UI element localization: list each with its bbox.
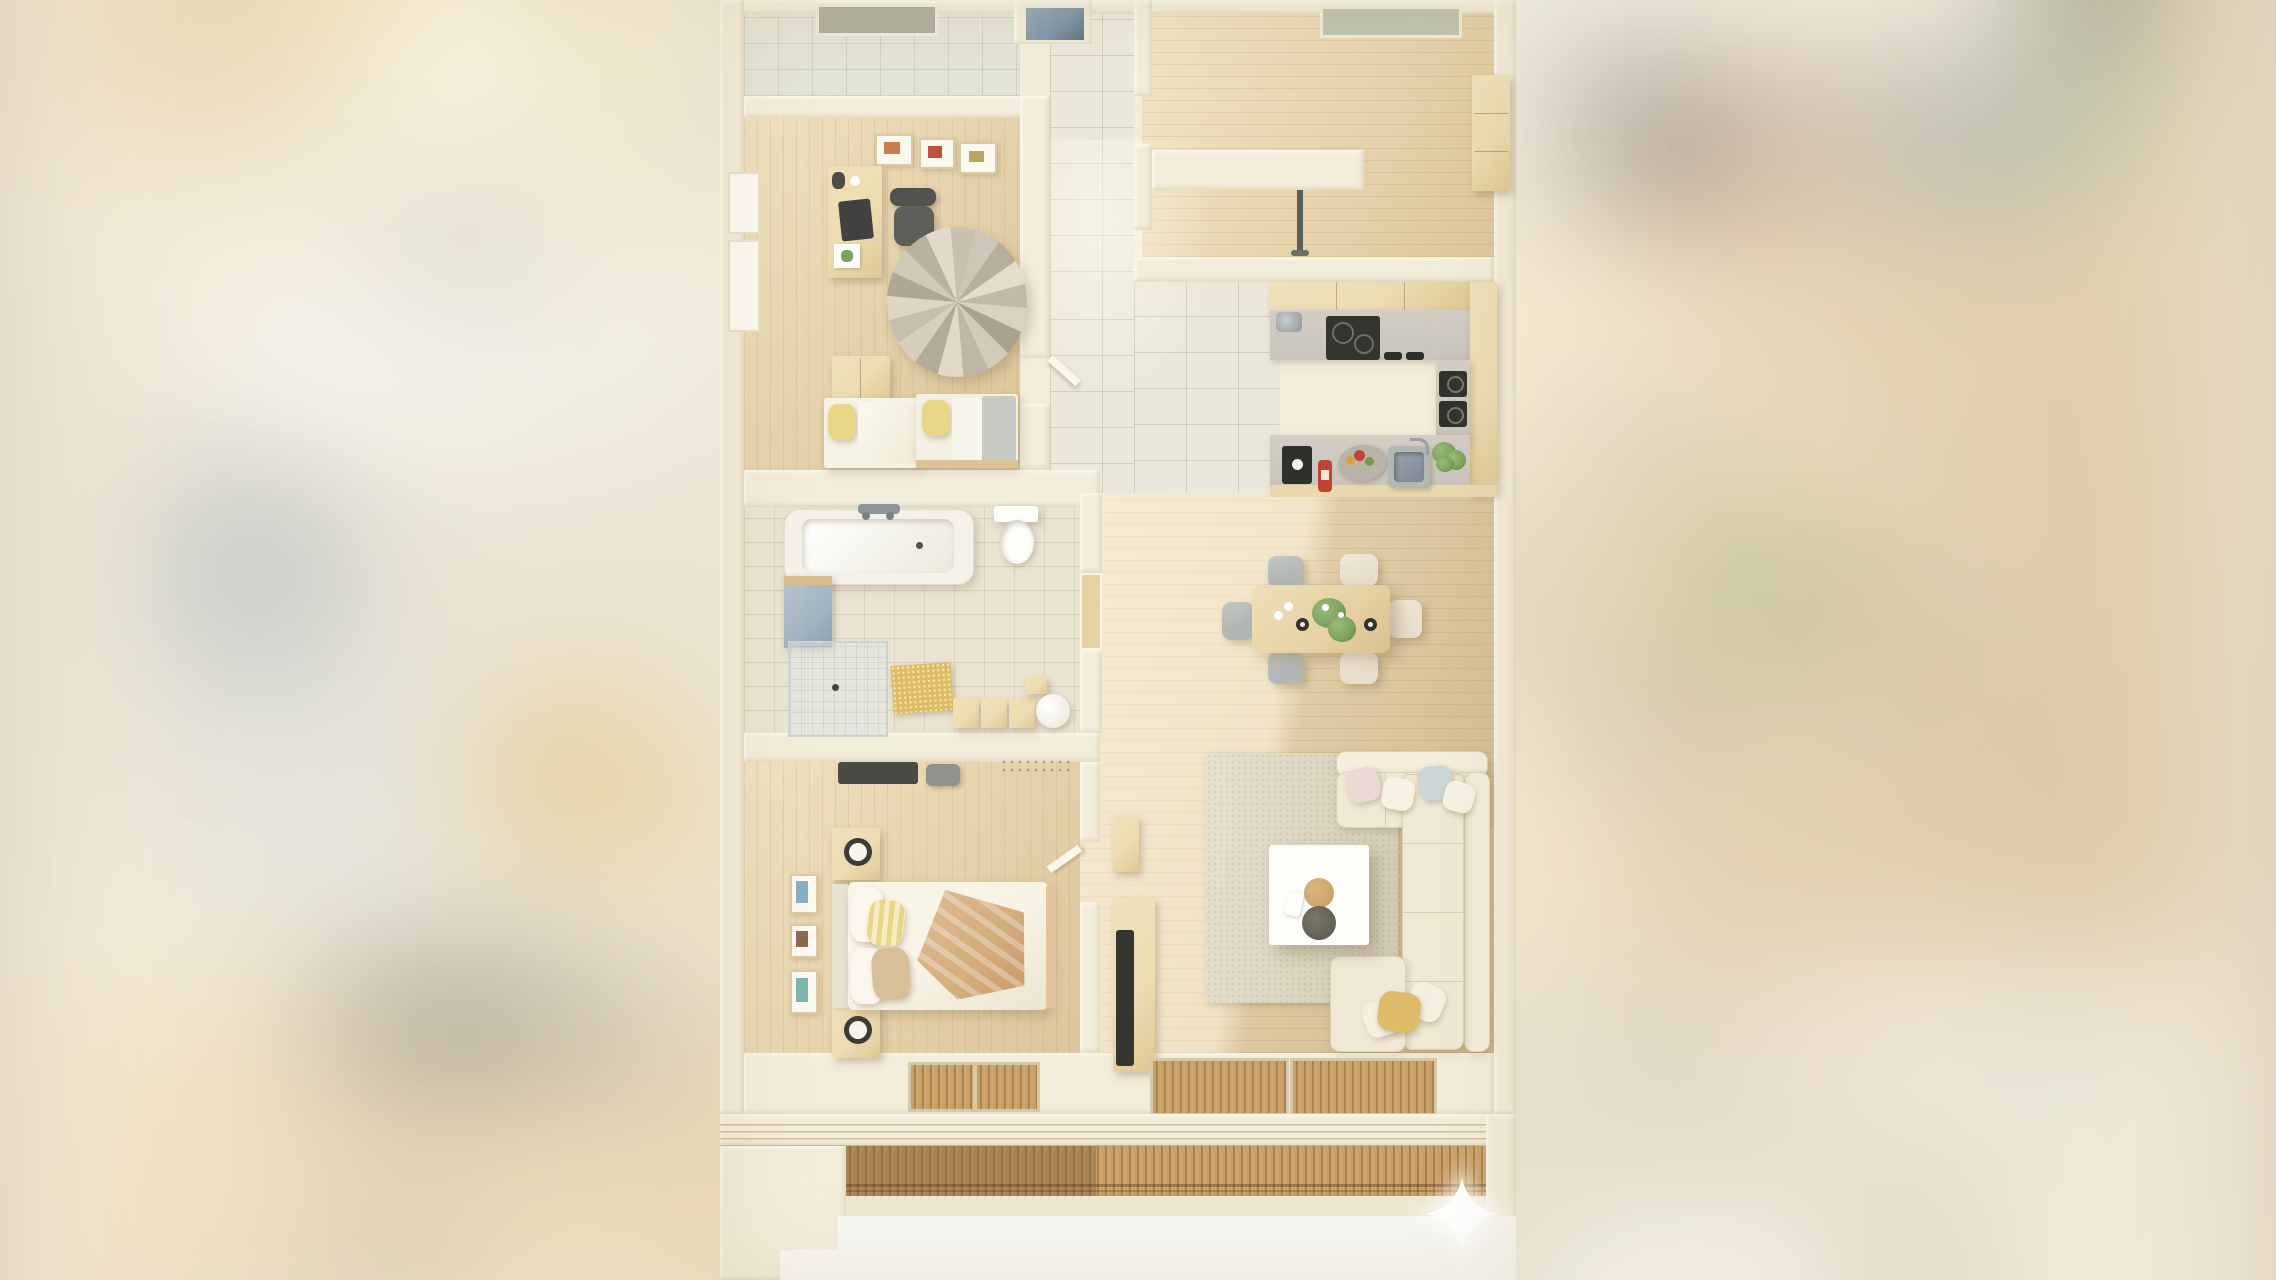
bowl: [1302, 906, 1336, 940]
closet: [1472, 75, 1510, 191]
wall: [1152, 150, 1364, 190]
wall: [744, 96, 1050, 118]
cup: [1284, 602, 1293, 611]
wall-art: [919, 138, 955, 169]
dining-chair: [1340, 652, 1378, 684]
kitchen-cabinet-right: [1470, 282, 1497, 493]
stove: [1326, 316, 1380, 360]
skylight: [1024, 6, 1086, 42]
shower-handle: [832, 684, 839, 691]
balcony-ledge: [846, 1196, 1486, 1216]
laundry-top: [784, 576, 832, 585]
vegetables: [1354, 450, 1365, 461]
parapet-lines: [720, 1124, 1516, 1146]
bed-pillow: [828, 404, 856, 440]
stool: [926, 764, 960, 786]
wall: [1020, 404, 1050, 470]
desk-speaker: [832, 172, 845, 189]
ketchup-bottle: [1318, 460, 1332, 492]
bed-blanket: [982, 396, 1016, 464]
dining-chair: [1388, 600, 1422, 638]
striped-pillow: [866, 898, 907, 948]
bathtub-drain: [916, 542, 923, 549]
bed-duvet: [952, 398, 982, 462]
laundry-unit: [784, 576, 832, 648]
plant: [1436, 456, 1454, 472]
office-chair: [890, 188, 936, 206]
window-opening: [1290, 1058, 1437, 1116]
wall: [1134, 0, 1152, 96]
floor-hallway: [1050, 14, 1134, 344]
floor-lamp-base: [1291, 250, 1309, 256]
window-opening: [908, 1062, 976, 1112]
dresser: [838, 762, 918, 784]
flower: [1338, 612, 1344, 618]
tv: [1116, 930, 1134, 1066]
window: [816, 4, 938, 36]
vegetables: [1346, 456, 1355, 465]
wall-art: [959, 142, 997, 174]
wall: [1080, 493, 1102, 573]
headboard: [832, 884, 848, 1008]
plant-picture: [834, 244, 860, 268]
tray: [1304, 878, 1334, 908]
floorplan-photo: [720, 0, 1516, 1280]
kitchen-counter-edge: [1270, 485, 1497, 497]
window-opening: [1150, 1058, 1289, 1116]
coffee-machine: [1282, 446, 1312, 484]
wall: [1134, 144, 1152, 230]
dining-chair: [1268, 652, 1304, 684]
wall-art: [790, 970, 818, 1014]
flower: [1322, 604, 1329, 611]
bed-pillow: [922, 400, 950, 436]
vase-of-flowers: [1328, 616, 1356, 642]
wall: [1080, 650, 1102, 733]
vegetables: [1365, 457, 1374, 466]
sink-faucet: [1410, 438, 1429, 455]
window: [728, 172, 760, 234]
basket: [981, 698, 1007, 728]
candle-holder: [1296, 618, 1309, 631]
window: [1320, 6, 1462, 38]
wall: [1134, 257, 1494, 282]
hat-box: [1036, 694, 1070, 728]
counter-tray: [1406, 352, 1424, 360]
oven: [1439, 401, 1467, 427]
dining-chair: [1222, 602, 1254, 640]
floor-entry-hall: [1142, 14, 1494, 257]
upper-cabinets: [1270, 282, 1472, 312]
monitor: [838, 198, 874, 241]
dining-chair: [1340, 554, 1378, 586]
floor-lamp: [1297, 190, 1303, 254]
desk-mug: [850, 176, 860, 186]
wall-art: [790, 924, 818, 958]
oven: [1439, 371, 1467, 397]
bath-mat: [890, 662, 953, 714]
wardrobe: [832, 356, 890, 400]
floor-kitchen: [1134, 257, 1280, 497]
counter-tray: [1384, 352, 1402, 360]
sink-basin: [1394, 452, 1424, 482]
basket: [1009, 698, 1035, 728]
basket: [953, 698, 979, 728]
round-rug: [887, 227, 1027, 377]
bath-faucet-handle: [862, 512, 870, 520]
dining-chair: [1268, 556, 1304, 588]
door-opening: [1080, 573, 1102, 650]
balcony-shadow: [846, 1146, 1096, 1196]
candle-holder: [1364, 618, 1377, 631]
wall: [1080, 762, 1100, 842]
lamp: [844, 838, 872, 866]
lamp: [844, 1016, 872, 1044]
bath-faucet-handle: [886, 512, 894, 520]
balcony-edge: [846, 1184, 1486, 1187]
bathtub-basin: [802, 519, 954, 573]
wall: [720, 0, 744, 1114]
tv-shelf: [1113, 816, 1139, 872]
garland: [1000, 758, 1070, 772]
wall-art: [790, 874, 818, 914]
wall: [744, 470, 1100, 507]
terrace: [780, 1250, 1516, 1280]
toilet-bowl: [1000, 520, 1034, 564]
basket: [1025, 676, 1047, 694]
window-opening: [974, 1062, 1040, 1112]
bed-duvet: [858, 402, 916, 464]
sofa-back: [1464, 772, 1490, 1052]
balcony-edge: [846, 1190, 1486, 1192]
floor-plan: [720, 0, 1516, 1280]
bed-pillow-beige: [870, 947, 912, 1002]
wall-art: [875, 134, 913, 166]
sofa-pillow-yellow: [1375, 989, 1422, 1034]
bed-frame: [916, 460, 1018, 468]
window: [728, 240, 760, 332]
wall: [1080, 902, 1100, 1053]
cup: [1274, 611, 1283, 620]
kitchen-faucet: [1276, 312, 1302, 332]
app-canvas: [0, 0, 2276, 1280]
bed-frame: [1046, 886, 1056, 1008]
